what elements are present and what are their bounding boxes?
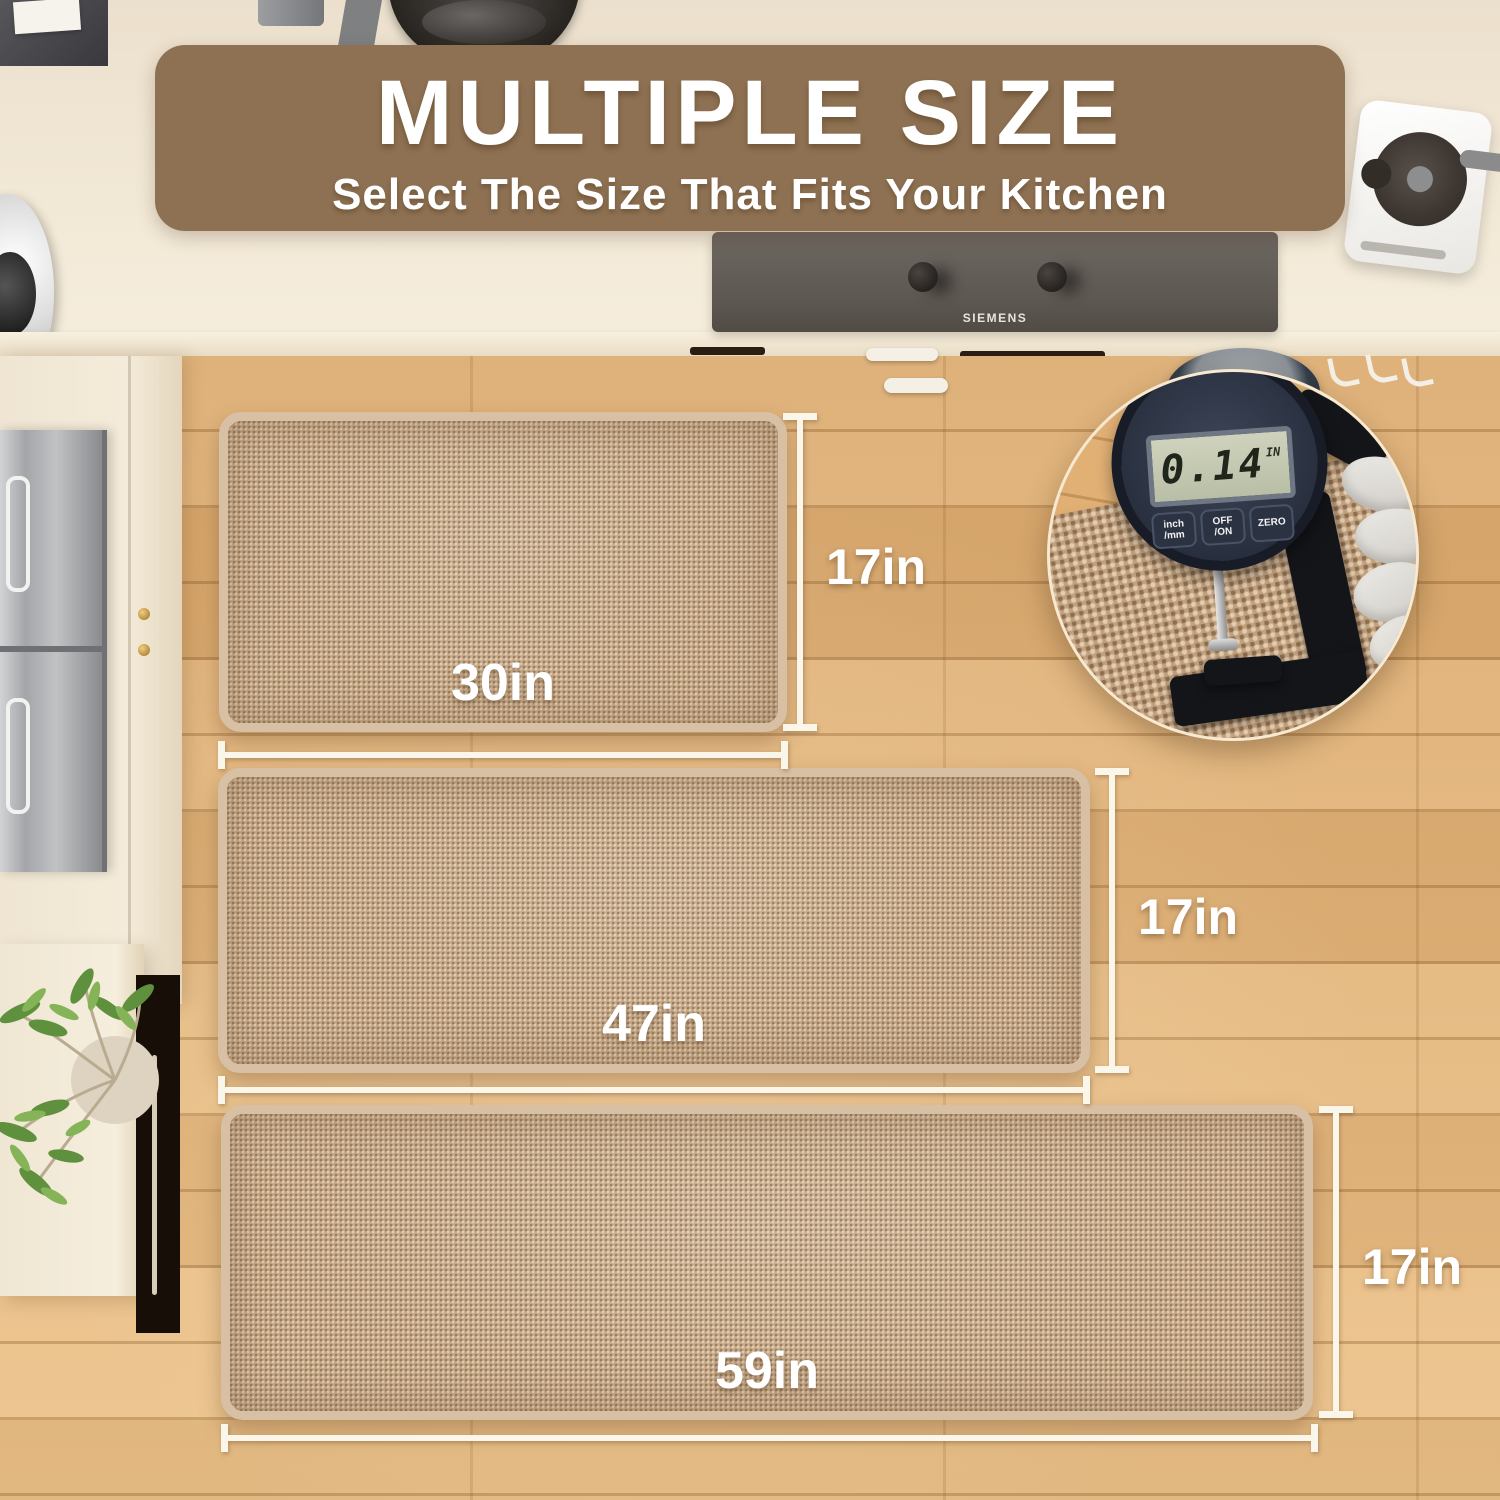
mat-medium-width-dimension: [218, 1076, 1090, 1104]
kettle-spout: [1360, 157, 1393, 190]
thickness-gauge: 0.14 IN inch /mm OFF /ON ZERO: [1047, 369, 1419, 741]
stove-brand-label: SIEMENS: [712, 311, 1278, 325]
gauge-button-inch-mm: inch /mm: [1151, 511, 1197, 550]
gauge-reading: 0.14: [1159, 444, 1266, 491]
pot-lid: [422, 0, 546, 44]
stove-knob: [908, 262, 938, 292]
kettle-lid: [1368, 127, 1473, 232]
mat-small-height-label: 17in: [826, 538, 926, 596]
gloved-hand: [1355, 509, 1419, 565]
mat-large: 59in: [221, 1105, 1313, 1420]
mat-large-height-label: 17in: [1362, 1238, 1462, 1296]
mat-medium-width-label: 47in: [227, 994, 1081, 1054]
cabinet-vent: [690, 347, 765, 355]
gauge-unit: IN: [1265, 444, 1280, 459]
house-plant: [0, 960, 190, 1250]
stove-front-panel: SIEMENS: [712, 232, 1278, 332]
mat-medium: 47in: [218, 768, 1090, 1073]
cabinet-knob: [138, 644, 150, 656]
cabinet-knob: [138, 608, 150, 620]
kitchen-scene: SIEMENS: [0, 0, 1500, 1500]
banner-subtitle: Select The Size That Fits Your Kitchen: [155, 170, 1345, 220]
mat-small-height-dimension: [783, 413, 817, 731]
mat-small-width-label: 30in: [228, 653, 778, 713]
gauge-contact-tip: [1208, 638, 1239, 652]
mat-small: 30in: [219, 412, 787, 732]
gauge-lcd: 0.14 IN: [1145, 426, 1296, 508]
gauge-button-text: /ON: [1214, 526, 1233, 539]
mat-medium-height-dimension: [1095, 768, 1129, 1073]
oven-handle: [6, 698, 30, 814]
cabinet-seam: [128, 356, 131, 1004]
gauge-button-text: /mm: [1164, 529, 1185, 542]
stove-knob: [1037, 262, 1067, 292]
oven-handle: [6, 476, 30, 592]
white-tray: [13, 0, 81, 34]
gauge-anvil: [1203, 655, 1283, 686]
knife-block: [258, 0, 324, 26]
mat-large-width-label: 59in: [230, 1341, 1304, 1401]
electric-kettle: [1343, 99, 1494, 276]
cabinet-door-handle: [884, 378, 948, 393]
chrome-kettle-top: [0, 252, 36, 336]
thickness-gauge-inset: 0.14 IN inch /mm OFF /ON ZERO: [1047, 369, 1419, 741]
kettle-lid-center: [1405, 165, 1434, 194]
mat-small-width-dimension: [218, 741, 788, 769]
gauge-button-text: ZERO: [1258, 517, 1287, 530]
banner-title: MULTIPLE SIZE: [155, 61, 1345, 166]
mat-large-height-dimension: [1319, 1106, 1353, 1418]
oven-divider: [0, 646, 102, 652]
mat-medium-height-label: 17in: [1138, 888, 1238, 946]
cabinet-door-handle: [866, 348, 938, 361]
gauge-button-zero: ZERO: [1249, 504, 1295, 543]
mat-large-width-dimension: [221, 1424, 1318, 1452]
stainless-oven: [0, 430, 107, 872]
headline-banner: MULTIPLE SIZE Select The Size That Fits …: [155, 45, 1345, 231]
kettle-base-vent: [1360, 240, 1446, 259]
gauge-button-off-on: OFF /ON: [1200, 507, 1246, 546]
